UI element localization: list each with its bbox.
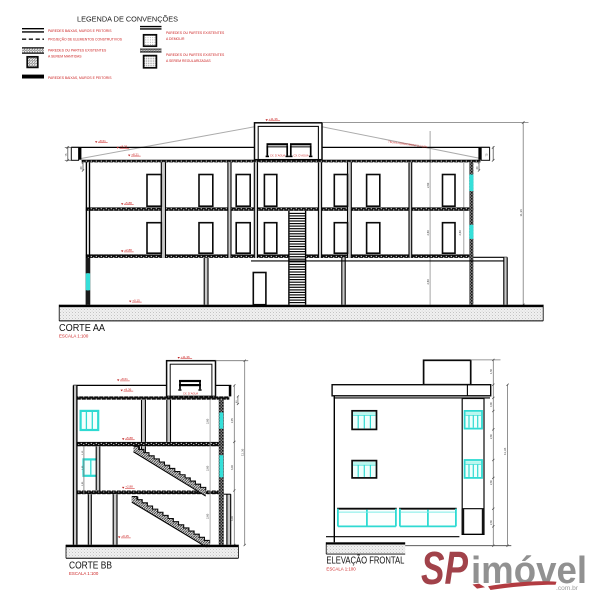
svg-text:+11,36: +11,36 <box>181 355 190 359</box>
svg-text:CORTE AA: CORTE AA <box>59 323 105 334</box>
svg-text:0,80: 0,80 <box>490 402 493 407</box>
svg-text:2,60: 2,60 <box>206 418 210 424</box>
svg-text:ELEVAÇÃO FRONTAL: ELEVAÇÃO FRONTAL <box>326 554 404 567</box>
svg-text:+8,61: +8,61 <box>98 139 106 143</box>
svg-text:3,00: 3,00 <box>231 516 234 521</box>
svg-text:+8,21: +8,21 <box>131 152 139 156</box>
svg-text:CX. D´AGUA: CX. D´AGUA <box>270 154 285 158</box>
svg-text:+8,36: +8,36 <box>124 387 132 391</box>
svg-text:2,60: 2,60 <box>426 279 430 285</box>
svg-text:+8,36: +8,36 <box>120 145 128 149</box>
svg-text:SP: SP <box>421 542 468 594</box>
svg-text:ESCALA 1:100: ESCALA 1:100 <box>326 567 356 572</box>
svg-text:2,60: 2,60 <box>490 480 493 485</box>
svg-text:+2,88: +2,88 <box>124 248 132 252</box>
svg-text:+8,61: +8,61 <box>120 377 128 381</box>
svg-text:2,60: 2,60 <box>490 434 493 439</box>
svg-text:2,60: 2,60 <box>426 230 430 236</box>
svg-text:3,00: 3,00 <box>231 465 234 470</box>
svg-text:+11,36: +11,36 <box>269 117 278 121</box>
svg-text:+5,88: +5,88 <box>124 201 132 205</box>
svg-text:11,36: 11,36 <box>240 448 244 456</box>
svg-text:PAREDES BAIXAS, MUROS E PEITOR: PAREDES BAIXAS, MUROS E PEITORIS <box>48 29 112 33</box>
svg-text:2,60: 2,60 <box>426 182 430 188</box>
svg-text:ESCALA 1:100: ESCALA 1:100 <box>69 571 99 576</box>
svg-text:11,36: 11,36 <box>503 447 507 455</box>
svg-text:PAREDES OU PARTES EXISTENTES: PAREDES OU PARTES EXISTENTES <box>166 53 225 57</box>
svg-text:+2,88: +2,88 <box>125 485 133 489</box>
svg-text:ESCALA 1:100: ESCALA 1:100 <box>59 334 89 339</box>
svg-text:1,56: 1,56 <box>490 369 493 374</box>
svg-text:PAREDES OU PARTES EXISTENTES: PAREDES OU PARTES EXISTENTES <box>48 48 107 52</box>
svg-text:CX. D´AGUA: CX. D´AGUA <box>294 154 309 158</box>
svg-text:CORTE BB: CORTE BB <box>69 561 112 572</box>
svg-text:11,36: 11,36 <box>519 209 523 217</box>
svg-text:LEGENDA DE CONVENÇÕES: LEGENDA DE CONVENÇÕES <box>77 15 178 24</box>
svg-text:2,95: 2,95 <box>231 418 234 423</box>
svg-text:A DEMOLIR: A DEMOLIR <box>166 37 185 41</box>
svg-text:+5,88: +5,88 <box>125 436 133 440</box>
svg-text:PAREDES OU PARTES EXISTENTES: PAREDES OU PARTES EXISTENTES <box>166 31 225 35</box>
svg-text:2,60: 2,60 <box>206 465 210 471</box>
svg-text:A SEREM MANTIDAS: A SEREM MANTIDAS <box>48 54 82 58</box>
svg-text:.com.br: .com.br <box>556 585 579 592</box>
svg-text:CX. D´AGUA: CX. D´AGUA <box>183 392 198 396</box>
svg-text:PROJEÇÃO DE ELEMENTOS CONSTRUT: PROJEÇÃO DE ELEMENTOS CONSTRUTIVOS <box>48 37 123 42</box>
svg-text:PAREDES BAIXAS, MUROS E PEITOR: PAREDES BAIXAS, MUROS E PEITORIS <box>48 76 112 80</box>
svg-text:+0,15: +0,15 <box>132 298 140 302</box>
svg-text:2,60: 2,60 <box>490 520 493 525</box>
svg-text:2,60: 2,60 <box>458 230 462 236</box>
svg-text:A SEREM REGULARIZADAS: A SEREM REGULARIZADAS <box>166 59 211 63</box>
svg-text:2,60: 2,60 <box>206 513 210 519</box>
svg-text:+0,15: +0,15 <box>121 534 129 538</box>
